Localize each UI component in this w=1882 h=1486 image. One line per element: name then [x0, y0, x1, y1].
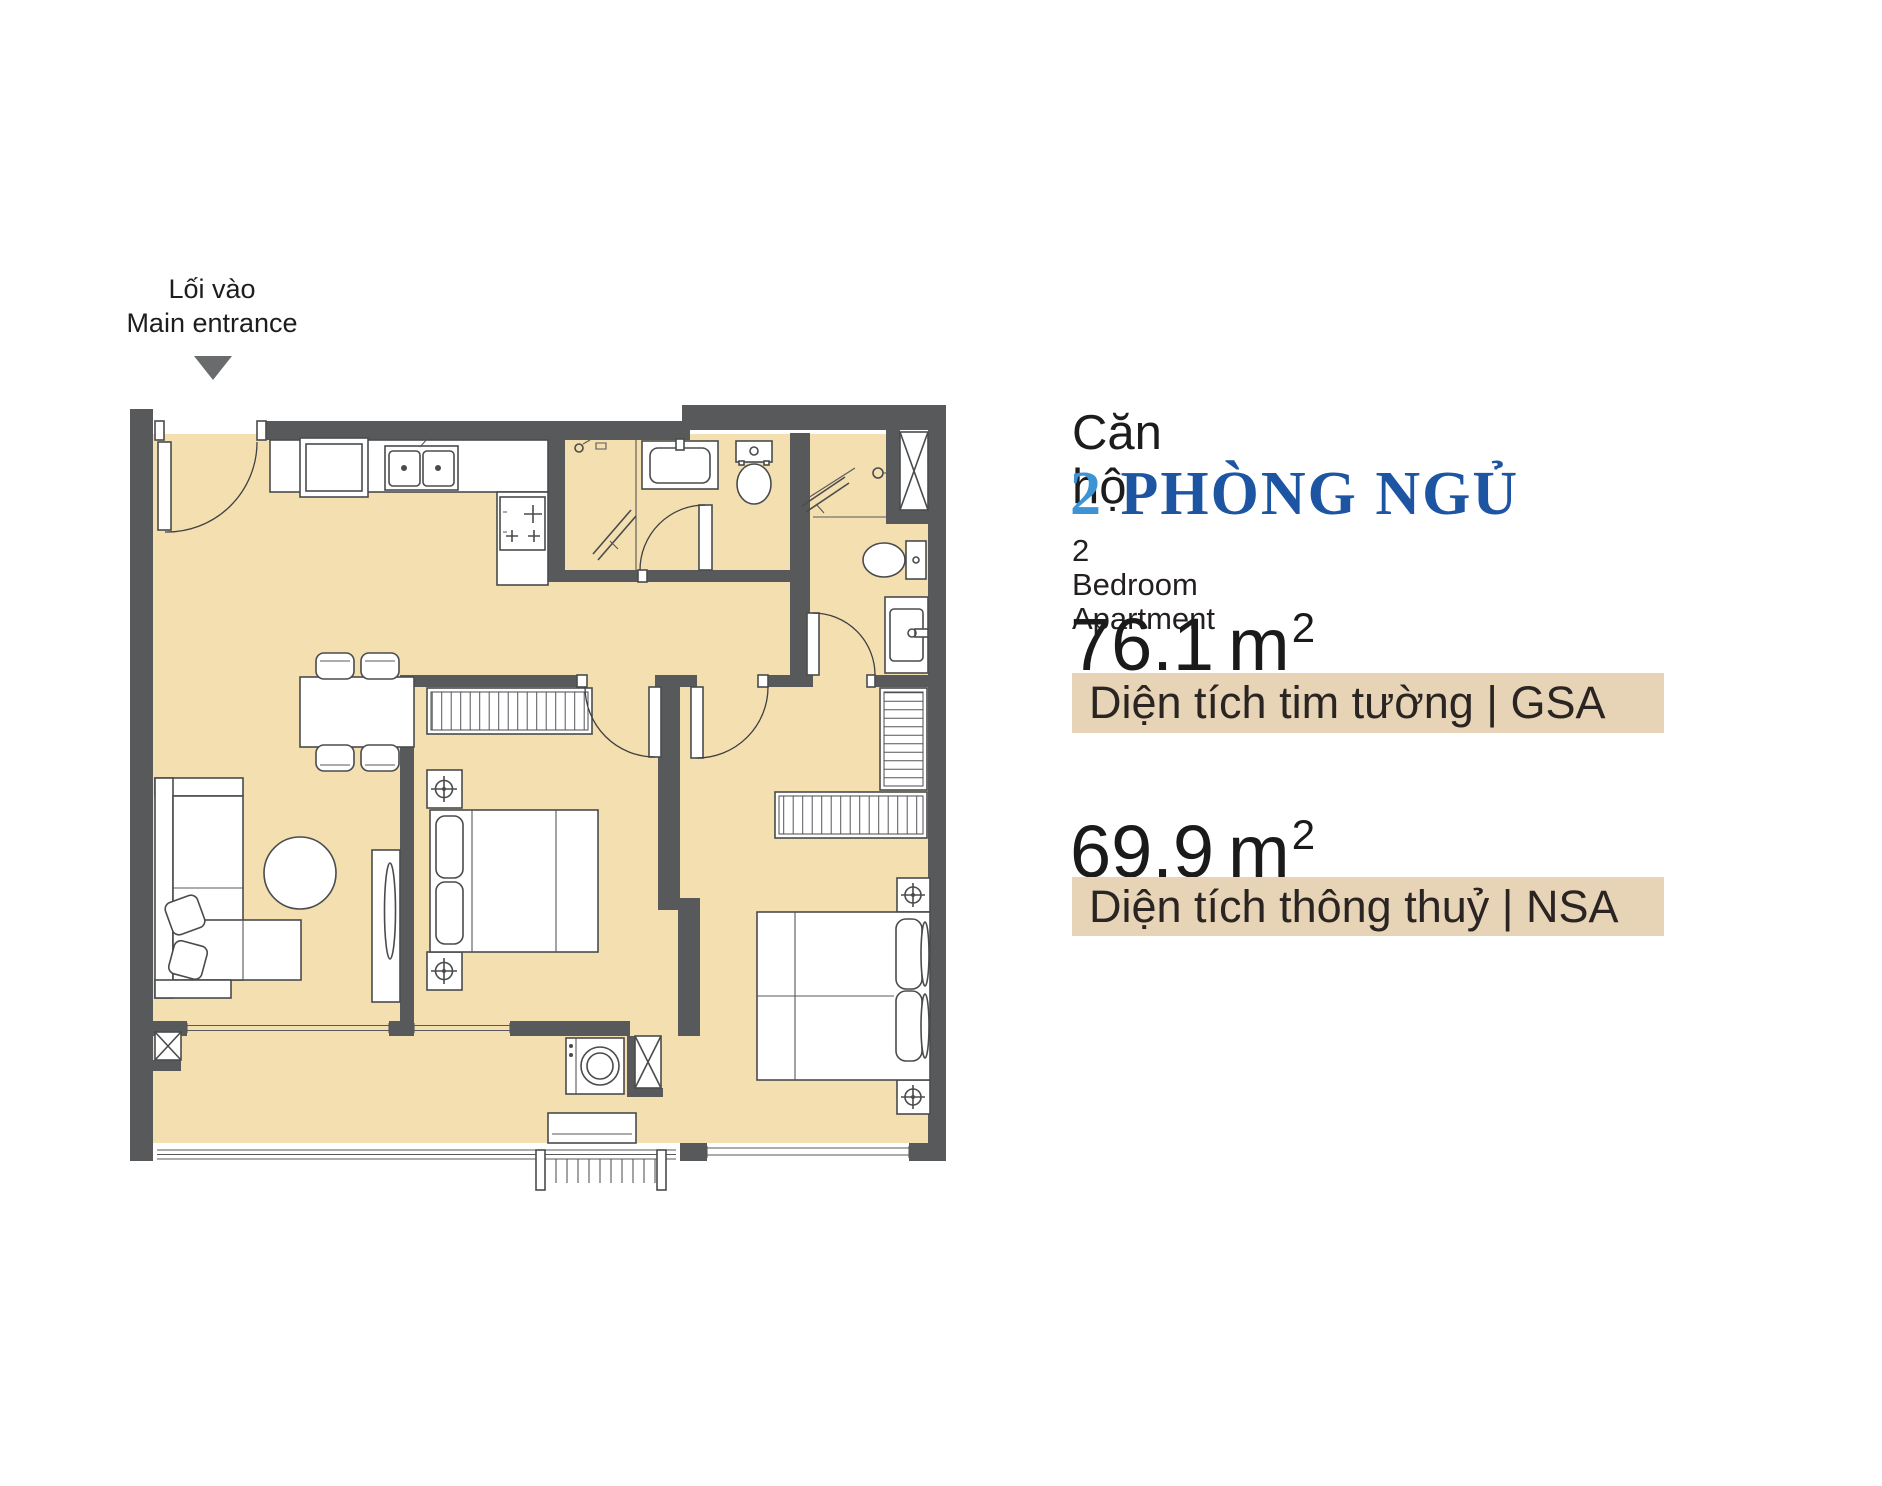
entrance-arrow-icon: [194, 356, 232, 380]
washing-machine: [566, 1038, 624, 1094]
bedroom2-wardrobe: [775, 792, 927, 838]
shaft-top-right: [900, 432, 928, 510]
refrigerator: [300, 438, 368, 497]
bedroom2-nightstand-bottom: [897, 1080, 930, 1114]
dining-table: [300, 677, 414, 747]
entrance-label: Lối vào Main entrance: [72, 272, 352, 340]
unit-bedrooms-count: 2: [1070, 460, 1103, 528]
bedroom1-nightstand-bottom: [427, 952, 462, 990]
bedroom1-wardrobe: [427, 688, 592, 734]
bathroom1-vanity: [642, 439, 718, 489]
shaft-utility: [635, 1036, 661, 1088]
bedroom2-bed: [757, 912, 930, 1080]
drying-rack: [536, 1150, 666, 1190]
page: Lối vào Main entrance Căn hộ 2 PHÒNG NGỦ…: [0, 0, 1882, 1486]
shaft-bottom-left: [155, 1032, 181, 1060]
entrance-label-vi: Lối vào: [72, 272, 352, 306]
bedroom2-shelf: [880, 688, 927, 790]
tv-console: [372, 850, 400, 1002]
kitchen-sink: [385, 438, 458, 490]
bathroom2-toilet: [863, 541, 926, 579]
unit-type-vi: PHÒNG NGỦ: [1121, 460, 1520, 528]
gsa-label-band: Diện tích tim tường | GSA: [1072, 673, 1664, 733]
floor-plan: [0, 0, 1882, 1486]
balcony-bench: [548, 1113, 636, 1143]
stove: [500, 497, 545, 550]
bedroom1-bed: [430, 810, 598, 952]
nsa-label-band: Diện tích thông thuỷ | NSA: [1072, 877, 1664, 936]
coffee-table: [264, 837, 336, 909]
balcony-railing: [157, 1150, 676, 1159]
gsa-area-value: 76.1m2: [1070, 588, 1315, 685]
bedroom1-nightstand-top: [427, 770, 462, 808]
bedroom2-nightstand-top: [897, 878, 930, 912]
entrance-label-en: Main entrance: [72, 306, 352, 340]
bathroom1-toilet: [736, 441, 772, 504]
unit-type-title: 2 PHÒNG NGỦ: [1070, 461, 1519, 527]
bathroom2-basin: [885, 597, 928, 673]
